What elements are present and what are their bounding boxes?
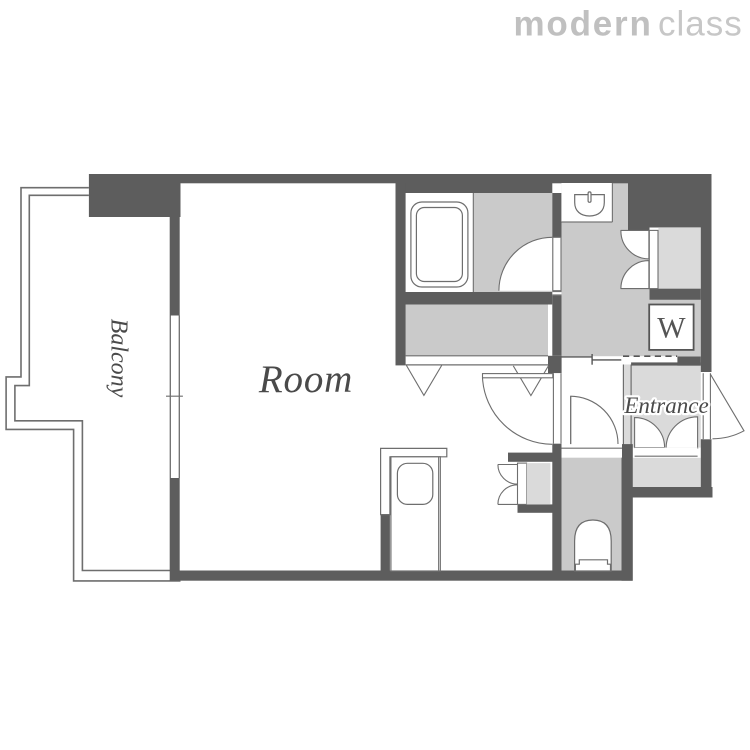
svg-text:modern: modern — [514, 5, 653, 44]
svg-text:W: W — [657, 312, 686, 345]
svg-text:Entrance: Entrance — [623, 393, 708, 418]
svg-text:class: class — [658, 5, 743, 44]
svg-text:Balcony: Balcony — [106, 319, 132, 398]
svg-text:Room: Room — [258, 358, 353, 401]
